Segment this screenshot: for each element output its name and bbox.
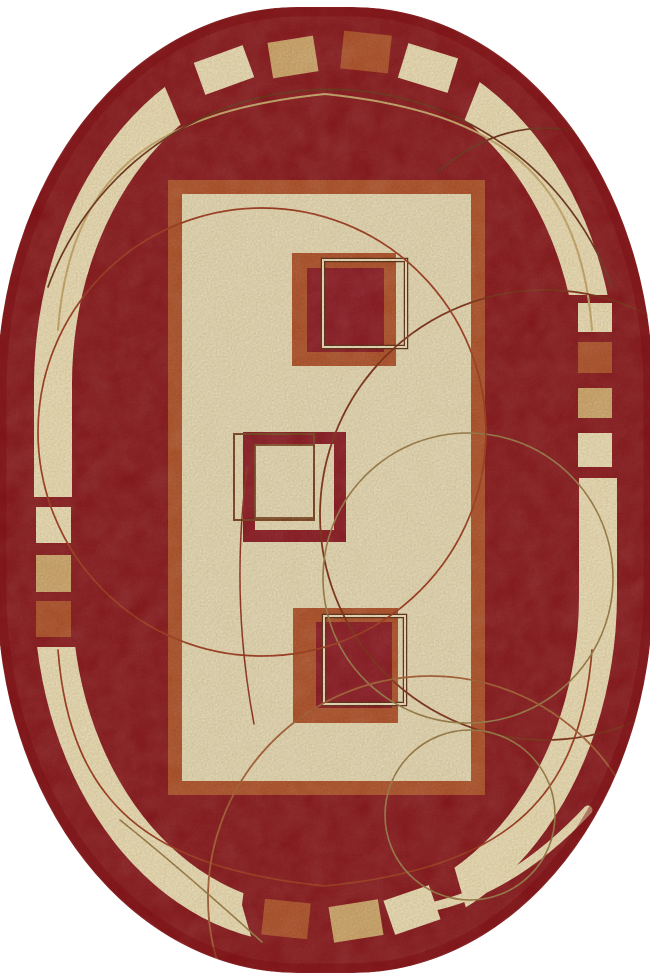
rug-svg bbox=[0, 0, 650, 977]
rug-oval bbox=[0, 7, 650, 977]
rug-product-photo bbox=[0, 0, 650, 977]
grain-texture bbox=[0, 7, 650, 973]
